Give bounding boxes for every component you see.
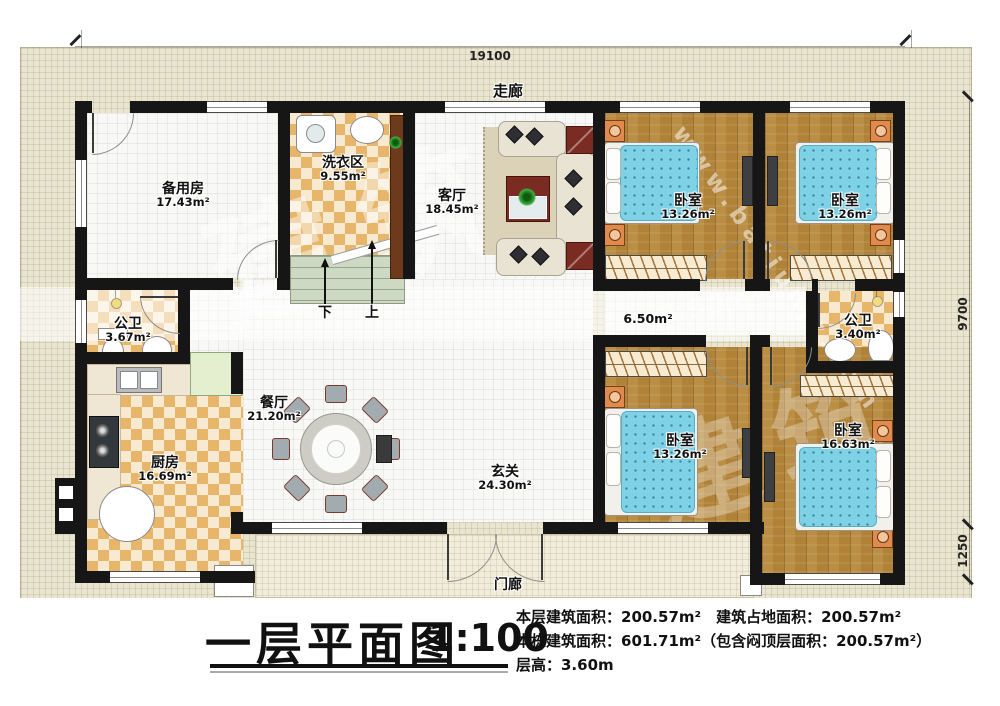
door-leaf [770,347,772,385]
room-area: 3.40m² [835,327,880,341]
wall-segment [543,522,618,534]
wall-segment [750,335,764,347]
dining-chair [272,438,290,460]
stair-arrow-down [324,266,326,304]
title-underline [210,664,508,668]
room-area: 18.45m² [425,202,478,216]
room-area: 21.20m² [247,409,300,423]
wall-segment [880,573,905,585]
door-leaf [92,113,94,153]
dining-table-center [327,440,345,458]
door-leaf [140,296,178,298]
floor-height-line: 层高：3.60m [516,654,614,675]
stair-arrow-up-head [368,240,376,249]
room-area: 13.26m² [653,447,706,461]
door-leaf [767,241,769,279]
window [893,240,905,273]
kitchen-table [99,486,155,542]
dimension-line-top [75,46,905,47]
foyer-cabinet [376,435,392,463]
bed-quilt [621,411,695,513]
wall-segment [806,361,905,373]
light-cord [876,291,877,297]
bed-pillow [876,182,891,214]
wall-segment [231,352,243,394]
bed-pillow [606,182,621,214]
stove-burner [96,424,109,437]
window [893,292,905,317]
red-mat-bottom [566,242,596,270]
wall-segment [75,352,190,364]
corridor-label: 走廊 [493,80,523,101]
window [618,522,708,534]
dining-chair [325,495,347,513]
wall-segment [593,113,605,291]
wall-segment [75,571,110,583]
wall-segment [893,317,905,585]
washer-drum [306,124,325,143]
room-area: 3.67m² [105,330,150,344]
door-leaf [818,293,820,327]
floor-plan: 6.50m² 建筑 建筑 www.batiunjz.com [0,0,1000,706]
nightstand [870,224,891,246]
window [75,160,87,227]
bed-pillow [876,486,891,518]
room-area: 16.63m² [821,437,874,451]
door-leaf [447,534,449,580]
chimney-flue [59,508,73,521]
door-leaf [541,534,543,580]
window [785,573,880,585]
ceiling-light-icon [872,296,883,307]
extension-line [81,30,82,48]
area-info-line1: 本层建筑面积：200.57m² 建筑占地面积：200.57m² [516,606,901,627]
wall-segment [855,279,905,291]
wall-segment [267,101,445,113]
window [790,101,870,113]
bed-pillow [876,148,891,180]
door-leaf [743,241,745,279]
chimney-flue [59,486,73,499]
area-info-line2: 本栋建筑面积：601.71m²（包含闷顶层面积：200.57m²） [516,630,931,651]
room-area: 9.55m² [320,169,365,183]
window [445,101,545,113]
stairs-up-label: 上 [365,302,379,322]
nightstand [870,120,891,142]
nightstand [872,420,893,442]
dimension-label-top: 19100 [469,49,511,63]
room-area: 24.30m² [478,478,531,492]
bed-pillow [606,414,621,448]
nightstand [604,120,625,142]
window [272,522,362,534]
title-underline-thin [210,671,508,673]
staircase [290,255,405,304]
bed-pillow [606,148,621,180]
wall-segment [700,101,790,113]
room-area: 13.26m² [661,207,714,221]
laundry-sink [350,116,384,144]
wall-segment [753,113,765,291]
stair-arrow-down-head [321,258,329,267]
stair-arrow-up [371,248,373,304]
wall-segment [403,113,415,279]
wall-segment [278,101,290,290]
room-area: 16.69m² [138,469,191,483]
plant-icon [389,136,402,149]
tv-panel [742,156,753,206]
kitchen-sink-bowl [120,371,138,389]
wall-segment [362,522,447,534]
ceiling-light-icon [111,298,122,309]
dimension-tick [899,34,911,46]
window [75,300,87,343]
door-leaf [746,347,748,385]
wall-segment [750,347,762,585]
wall-segment [593,335,605,534]
wall-segment [231,512,243,534]
room-area: 17.43m² [156,195,209,209]
window [110,571,200,583]
nightstand [604,386,625,408]
plant-icon [518,188,536,206]
wall-segment [764,335,770,347]
wall-segment [130,101,207,113]
nightstand [604,224,625,246]
wall-segment [545,101,620,113]
porch-label: 门廊 [494,574,522,594]
wardrobe [605,255,707,281]
bed-quilt [799,447,877,527]
tv-panel [767,156,778,206]
stove-burner [96,444,109,457]
wall-segment [893,101,905,240]
stairs-down-label: 下 [318,302,332,322]
dimension-tick [69,34,81,46]
window [620,101,700,113]
dimension-label-right-upper: 9700 [951,292,975,336]
window [207,101,267,113]
dining-chair [325,385,347,403]
extension-line [911,30,912,48]
tv-panel [764,452,775,502]
red-mat-top [566,126,596,154]
wall-segment [593,279,700,291]
title-block: 一层平面图 1:100 本层建筑面积：200.57m² 建筑占地面积：200.5… [0,598,1000,706]
corridor-area-label: 6.50m² [623,311,672,326]
bed-pillow [876,450,891,482]
bed-pillow [606,452,621,486]
wall-segment [75,278,233,290]
room-area: 13.26m² [818,207,871,221]
kitchen-sink-bowl [140,371,158,389]
wall-segment [75,101,87,160]
bathroom-sink [824,338,856,362]
light-cord [115,290,116,298]
wardrobe [605,351,707,377]
dimension-line-right [969,101,970,585]
wall-segment [200,571,255,583]
wall-segment [75,343,87,583]
dimension-label-right-lower: 1250 [951,529,975,573]
wardrobe [800,375,895,397]
wall-segment [812,279,818,291]
wall-segment [593,335,706,347]
door-leaf [275,240,277,278]
